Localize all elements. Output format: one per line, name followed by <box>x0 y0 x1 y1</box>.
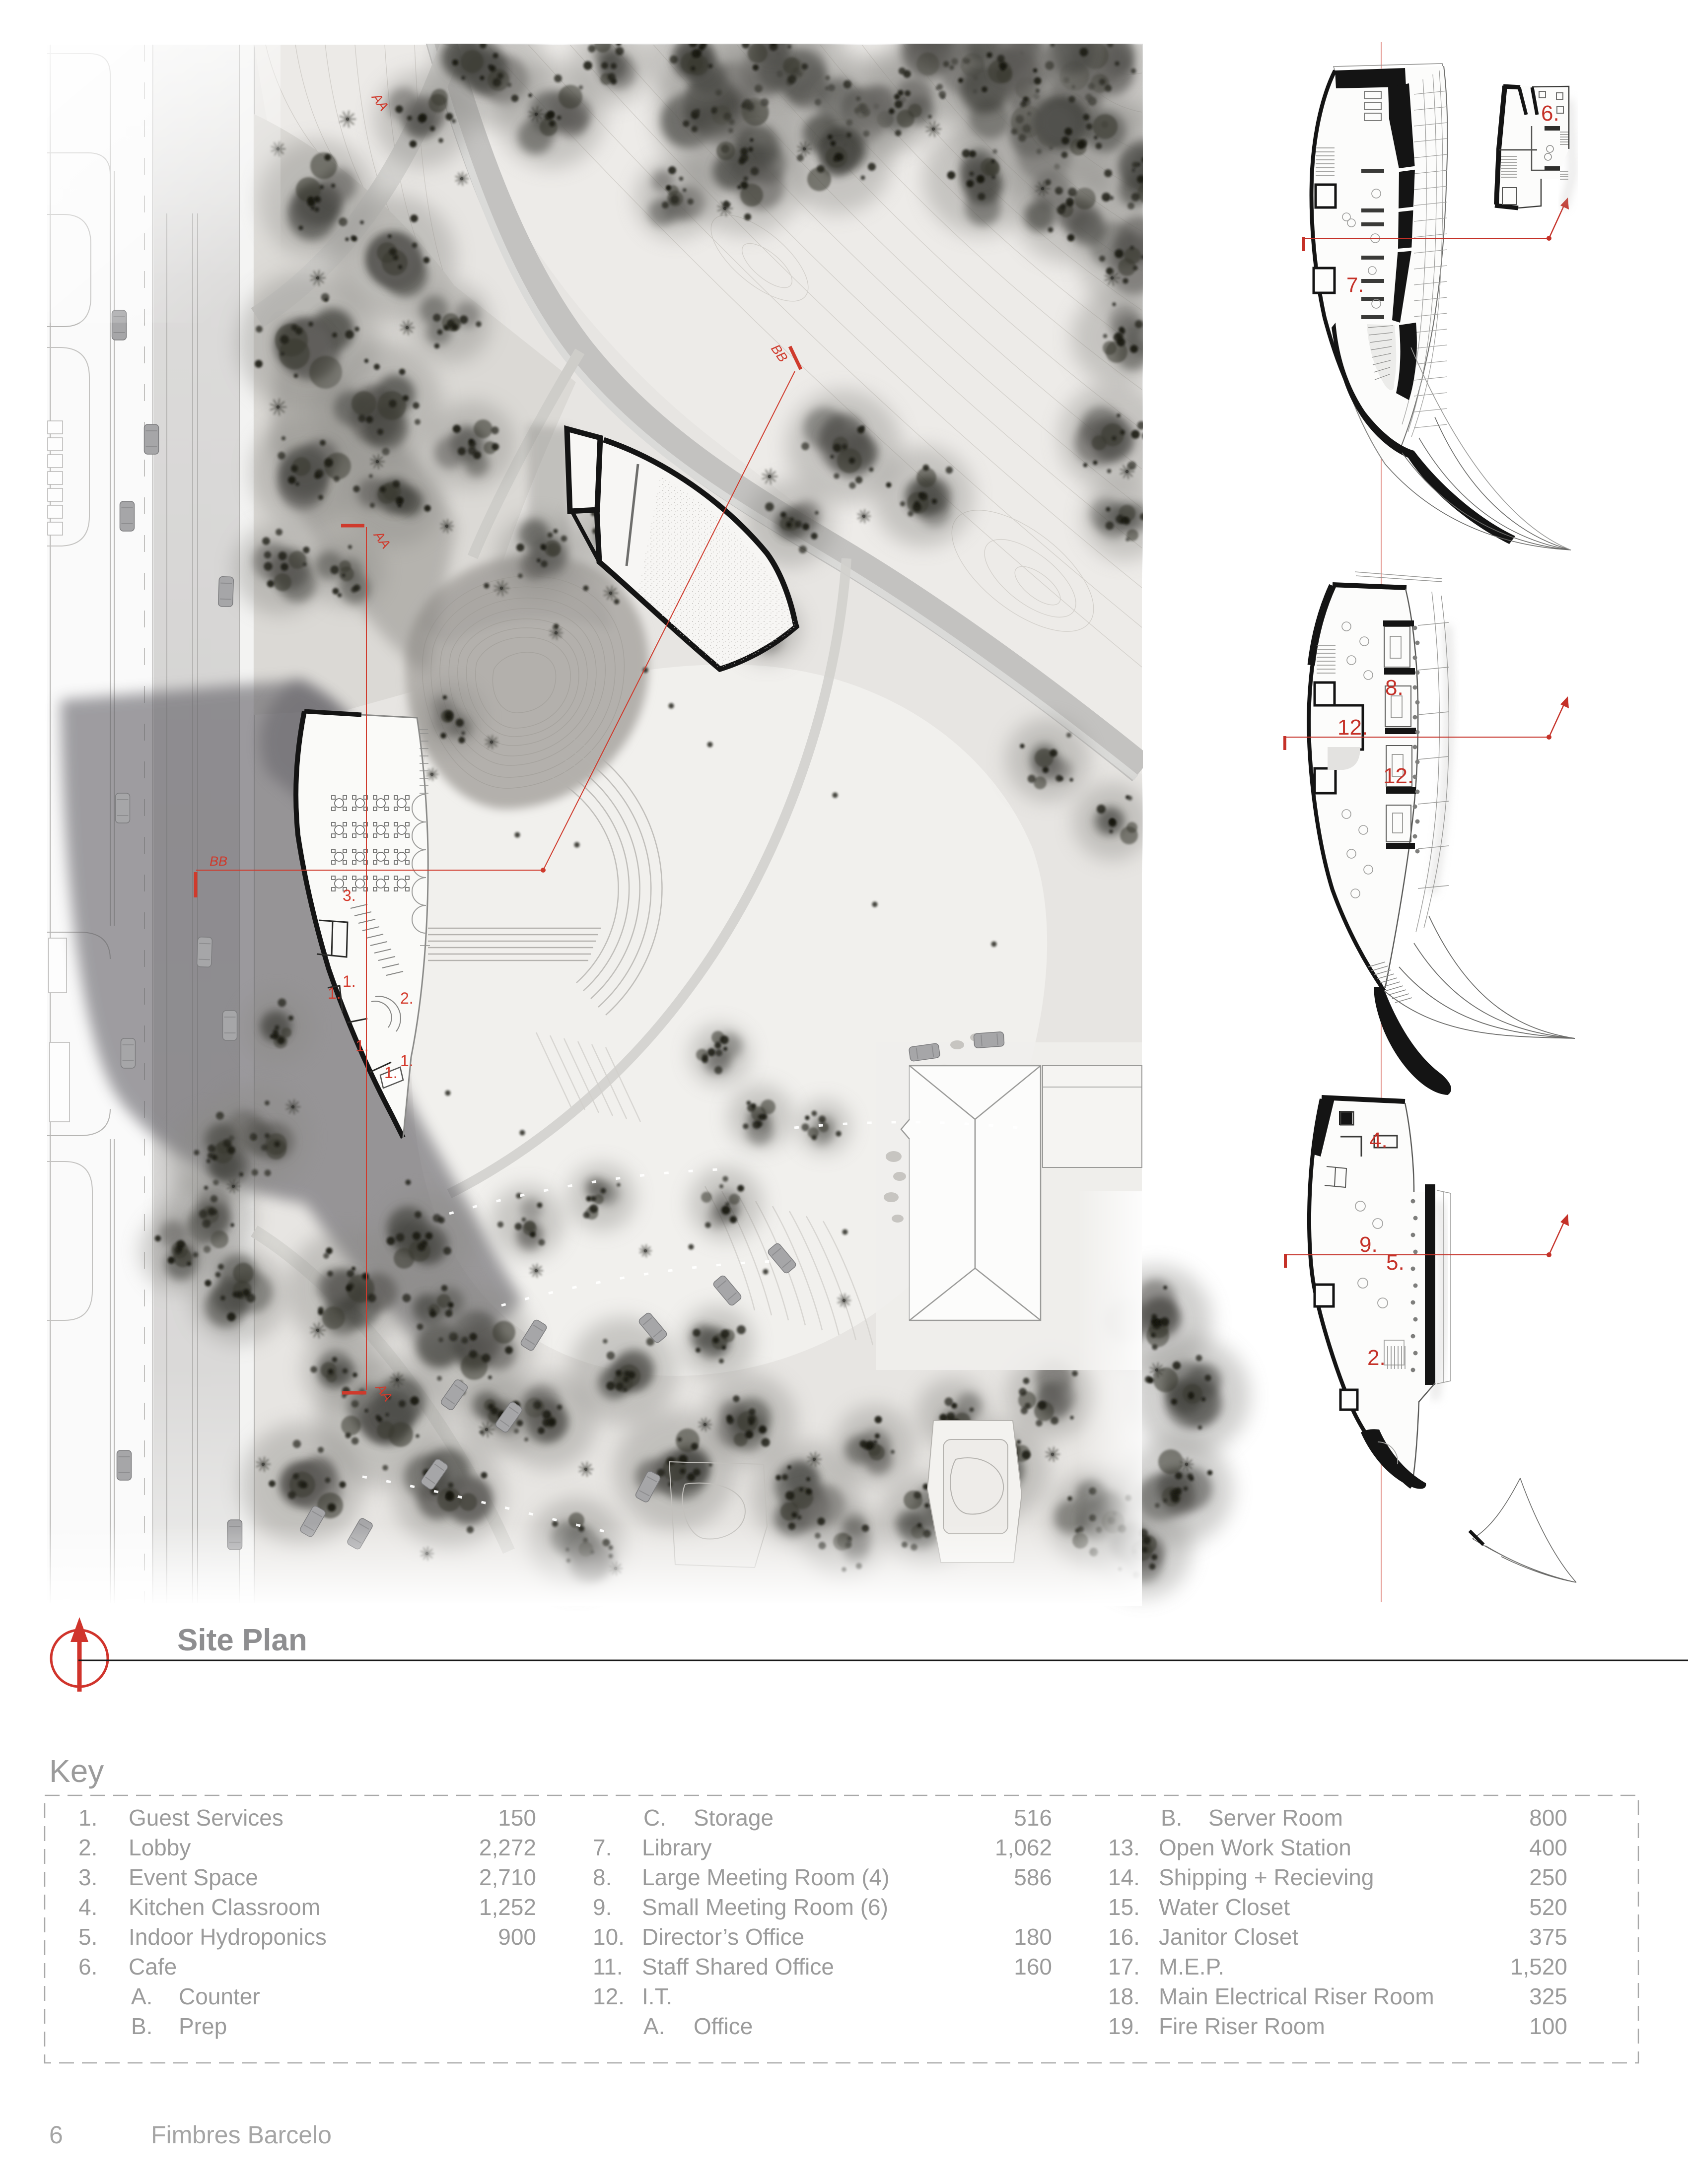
svg-text:15.: 15. <box>1108 1894 1140 1920</box>
svg-text:1,252: 1,252 <box>479 1894 536 1920</box>
svg-text:A.: A. <box>131 1983 152 2009</box>
svg-text:Fire Riser Room: Fire Riser Room <box>1159 2013 1325 2039</box>
svg-text:Prep: Prep <box>179 2013 227 2039</box>
svg-text:2.: 2. <box>1367 1346 1386 1370</box>
svg-text:7.: 7. <box>1346 273 1364 296</box>
svg-text:2.: 2. <box>400 989 414 1007</box>
svg-text:14.: 14. <box>1108 1864 1140 1890</box>
svg-text:Server Room: Server Room <box>1208 1805 1343 1831</box>
svg-text:180: 180 <box>1014 1924 1052 1950</box>
svg-text:4.: 4. <box>1369 1128 1388 1153</box>
svg-text:5.: 5. <box>1386 1250 1405 1275</box>
svg-text:Small Meeting Room (6): Small Meeting Room (6) <box>642 1894 888 1920</box>
svg-text:Lobby: Lobby <box>129 1835 191 1860</box>
svg-text:Key: Key <box>49 1753 104 1789</box>
svg-text:12.: 12. <box>1337 715 1368 740</box>
svg-text:Open Work Station: Open Work Station <box>1159 1835 1351 1860</box>
svg-text:1,062: 1,062 <box>995 1835 1052 1860</box>
svg-text:800: 800 <box>1529 1805 1567 1831</box>
svg-text:Event Space: Event Space <box>129 1864 258 1890</box>
svg-text:Fimbres Barcelo: Fimbres Barcelo <box>151 2121 332 2149</box>
svg-text:Large Meeting Room (4): Large Meeting Room (4) <box>642 1864 890 1890</box>
svg-text:Guest Services: Guest Services <box>129 1805 283 1831</box>
svg-text:17.: 17. <box>1108 1954 1140 1979</box>
svg-text:Director’s Office: Director’s Office <box>642 1924 804 1950</box>
svg-text:9.: 9. <box>1359 1232 1378 1257</box>
svg-text:6.: 6. <box>1541 101 1559 126</box>
svg-text:Counter: Counter <box>179 1983 260 2009</box>
svg-text:2,710: 2,710 <box>479 1864 536 1890</box>
svg-text:12.: 12. <box>593 1983 625 2009</box>
svg-text:10.: 10. <box>593 1924 625 1950</box>
svg-text:900: 900 <box>498 1924 536 1950</box>
svg-text:Main Electrical Riser Room: Main Electrical Riser Room <box>1159 1983 1434 2009</box>
svg-text:1.: 1. <box>328 984 341 1002</box>
svg-text:3.: 3. <box>343 887 356 904</box>
svg-text:150: 150 <box>498 1805 536 1831</box>
svg-text:400: 400 <box>1529 1835 1567 1860</box>
svg-text:Janitor Closet: Janitor Closet <box>1159 1924 1298 1950</box>
svg-text:160: 160 <box>1014 1954 1052 1979</box>
svg-text:7.: 7. <box>593 1835 612 1860</box>
svg-text:16.: 16. <box>1108 1924 1140 1950</box>
svg-text:A.: A. <box>643 2013 665 2039</box>
svg-text:12.: 12. <box>1383 764 1413 788</box>
svg-text:520: 520 <box>1529 1894 1567 1920</box>
svg-text:I.T.: I.T. <box>642 1983 672 2009</box>
svg-text:1.: 1. <box>355 1037 369 1055</box>
svg-text:9.: 9. <box>593 1894 612 1920</box>
svg-text:375: 375 <box>1529 1924 1567 1950</box>
svg-text:250: 250 <box>1529 1864 1567 1890</box>
svg-text:1,520: 1,520 <box>1510 1954 1567 1979</box>
svg-text:Library: Library <box>642 1835 712 1860</box>
svg-text:1.: 1. <box>400 1052 414 1070</box>
svg-text:BB: BB <box>210 854 227 869</box>
svg-text:18.: 18. <box>1108 1983 1140 2009</box>
svg-text:13.: 13. <box>1108 1835 1140 1860</box>
svg-text:3.: 3. <box>78 1864 97 1890</box>
svg-text:Kitchen Classroom: Kitchen Classroom <box>129 1894 320 1920</box>
svg-text:8.: 8. <box>1385 676 1404 700</box>
svg-text:B.: B. <box>131 2013 152 2039</box>
svg-text:8.: 8. <box>593 1864 612 1890</box>
svg-text:Office: Office <box>694 2013 753 2039</box>
svg-text:Water Closet: Water Closet <box>1159 1894 1290 1920</box>
svg-text:11.: 11. <box>593 1954 623 1979</box>
svg-text:516: 516 <box>1014 1805 1052 1831</box>
svg-text:6: 6 <box>49 2121 63 2149</box>
svg-text:586: 586 <box>1014 1864 1052 1890</box>
svg-text:6.: 6. <box>78 1954 97 1979</box>
svg-text:100: 100 <box>1529 2013 1567 2039</box>
svg-text:Staff Shared Office: Staff Shared Office <box>642 1954 834 1979</box>
svg-text:B.: B. <box>1161 1805 1182 1831</box>
svg-text:Storage: Storage <box>694 1805 774 1831</box>
svg-text:1.: 1. <box>384 1064 398 1082</box>
svg-text:Indoor Hydroponics: Indoor Hydroponics <box>129 1924 327 1950</box>
svg-text:4.: 4. <box>78 1894 97 1920</box>
svg-text:C.: C. <box>643 1805 666 1831</box>
svg-text:1.: 1. <box>78 1805 97 1831</box>
svg-text:325: 325 <box>1529 1983 1567 2009</box>
svg-text:19.: 19. <box>1108 2013 1140 2039</box>
svg-text:1.: 1. <box>343 972 356 990</box>
svg-text:5.: 5. <box>78 1924 97 1950</box>
svg-text:Cafe: Cafe <box>129 1954 177 1979</box>
svg-text:2.: 2. <box>78 1835 97 1860</box>
svg-text:Shipping + Recieving: Shipping + Recieving <box>1159 1864 1374 1890</box>
svg-text:M.E.P.: M.E.P. <box>1159 1954 1224 1979</box>
svg-text:Site Plan: Site Plan <box>177 1623 307 1657</box>
svg-text:2,272: 2,272 <box>479 1835 536 1860</box>
